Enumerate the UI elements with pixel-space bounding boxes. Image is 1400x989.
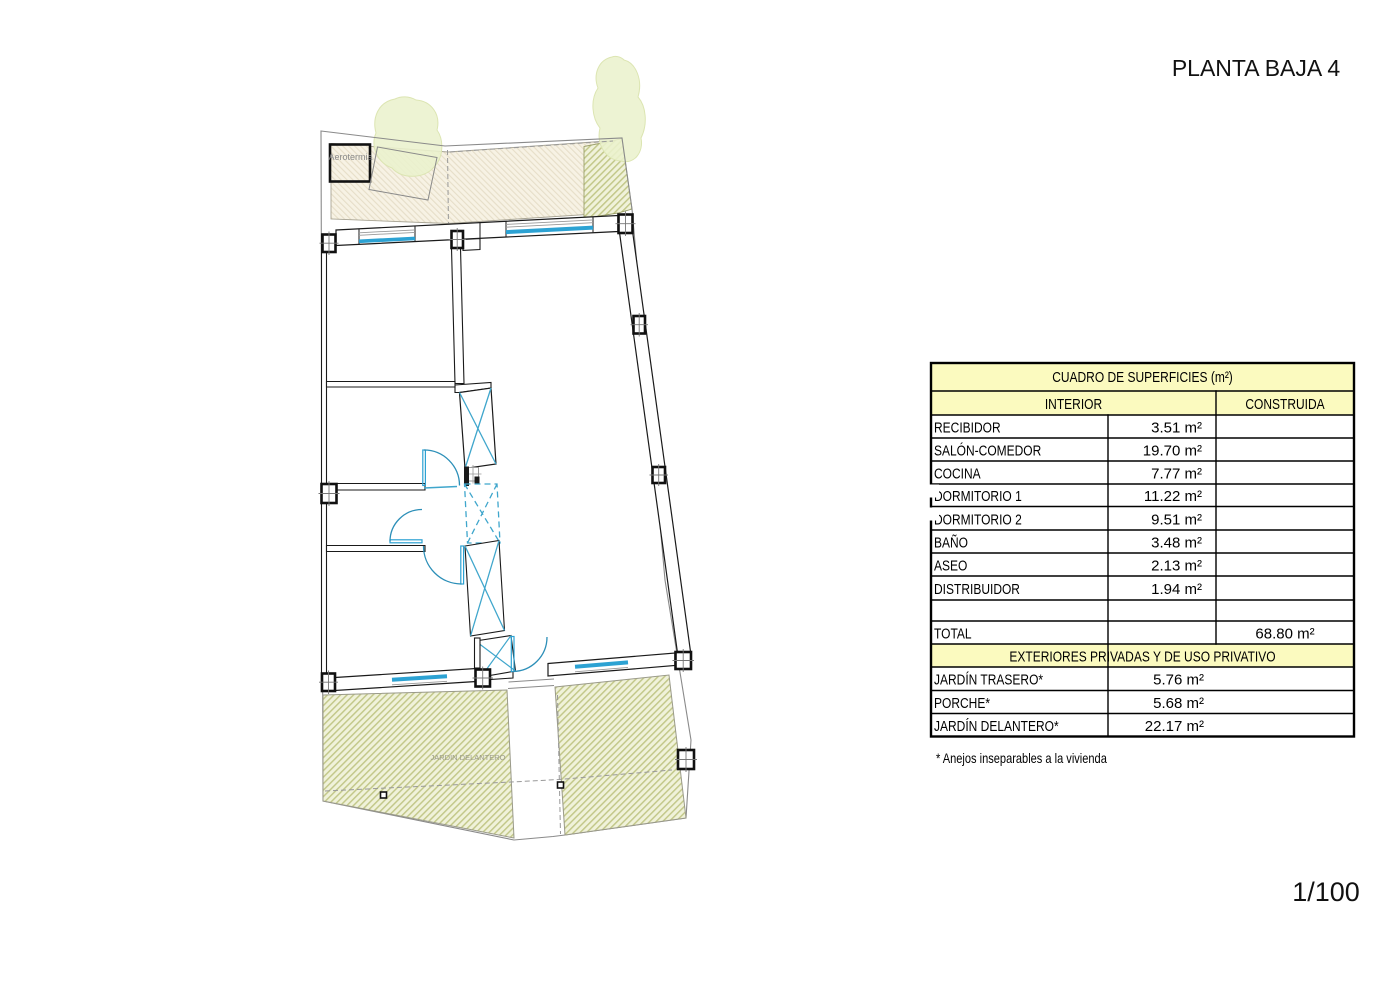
svg-text:JARDIN DELANTERO: JARDIN DELANTERO (430, 753, 505, 762)
svg-text:Aerotermia: Aerotermia (329, 152, 373, 162)
svg-text:CUADRO DE SUPERFICIES (m²): CUADRO DE SUPERFICIES (m²) (1052, 369, 1233, 386)
svg-text:JARDÍN TRASERO*: JARDÍN TRASERO* (934, 671, 1044, 688)
svg-text:11.22 m²: 11.22 m² (1144, 488, 1202, 505)
svg-text:9.51 m²: 9.51 m² (1151, 512, 1202, 529)
svg-text:* Anejos inseparables a la viv: * Anejos inseparables a la vivienda (936, 751, 1107, 766)
svg-text:DORMITORIO 2: DORMITORIO 2 (934, 511, 1022, 528)
svg-text:2.13 m²: 2.13 m² (1151, 558, 1202, 575)
svg-text:1/100: 1/100 (1292, 877, 1360, 907)
svg-text:22.17 m²: 22.17 m² (1145, 718, 1204, 735)
svg-text:7.77 m²: 7.77 m² (1151, 466, 1202, 483)
svg-text:DISTRIBUIDOR: DISTRIBUIDOR (934, 581, 1020, 598)
svg-text:5.76 m²: 5.76 m² (1153, 672, 1204, 689)
svg-text:PORCHE*: PORCHE* (934, 695, 991, 712)
svg-text:19.70 m²: 19.70 m² (1143, 443, 1202, 460)
svg-text:3.48 m²: 3.48 m² (1151, 535, 1202, 552)
svg-text:TOTAL: TOTAL (934, 625, 972, 642)
svg-text:PLANTA BAJA 4: PLANTA BAJA 4 (1172, 55, 1341, 81)
svg-text:EXTERIORES PRIVADAS Y DE USO P: EXTERIORES PRIVADAS Y DE USO PRIVATIVO (1009, 648, 1275, 665)
svg-text:CONSTRUIDA: CONSTRUIDA (1245, 396, 1325, 413)
svg-text:SALÓN-COMEDOR: SALÓN-COMEDOR (934, 442, 1041, 459)
svg-text:ASEO: ASEO (934, 557, 967, 574)
svg-text:DORMITORIO 1: DORMITORIO 1 (934, 488, 1022, 505)
svg-text:JARDÍN DELANTERO*: JARDÍN DELANTERO* (934, 718, 1059, 735)
svg-text:3.51 m²: 3.51 m² (1151, 420, 1202, 437)
svg-text:5.68 m²: 5.68 m² (1153, 695, 1204, 712)
svg-text:RECIBIDOR: RECIBIDOR (934, 419, 1001, 436)
svg-text:INTERIOR: INTERIOR (1045, 396, 1102, 413)
svg-text:BAÑO: BAÑO (934, 534, 968, 551)
svg-text:COCINA: COCINA (934, 465, 981, 482)
svg-text:1.94 m²: 1.94 m² (1151, 581, 1202, 598)
svg-text:68.80 m²: 68.80 m² (1255, 626, 1314, 643)
